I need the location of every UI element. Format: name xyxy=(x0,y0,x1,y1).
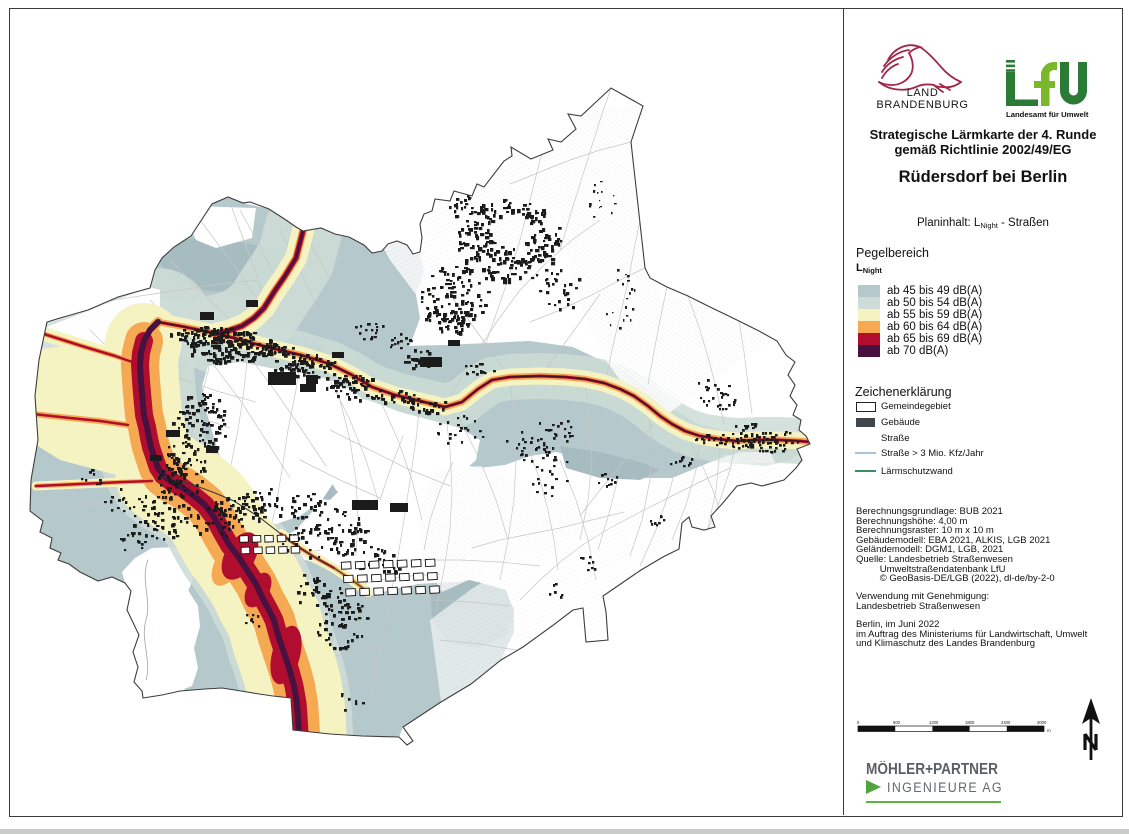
svg-text:Landesamt für Umwelt: Landesamt für Umwelt xyxy=(1006,110,1089,118)
svg-text:m: m xyxy=(1047,728,1051,733)
svg-text:1200: 1200 xyxy=(929,720,939,725)
svg-text:600: 600 xyxy=(893,720,901,725)
svg-text:3000: 3000 xyxy=(1037,720,1047,725)
svg-text:2400: 2400 xyxy=(1001,720,1011,725)
svg-text:0: 0 xyxy=(857,720,860,725)
svg-text:1800: 1800 xyxy=(965,720,975,725)
